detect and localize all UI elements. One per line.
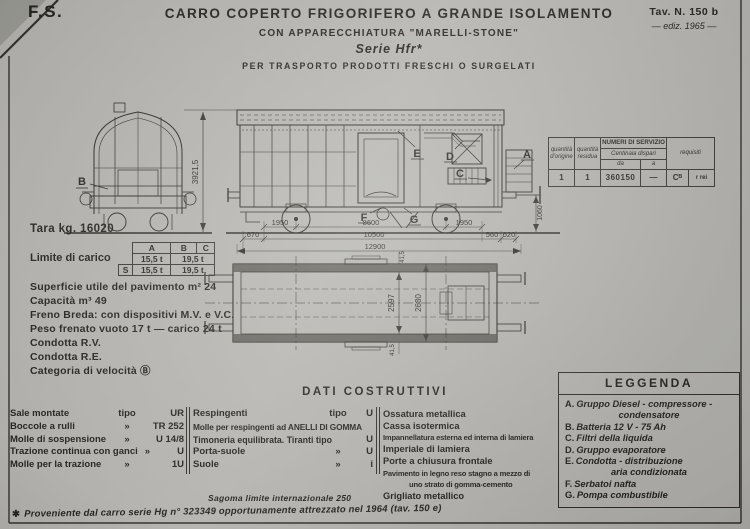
legend-items: A.Gruppo Diesel - compressore - condensa… — [559, 395, 739, 507]
dati-label: Molle di sospensione — [10, 434, 112, 447]
dati-item: Ossatura metallica — [383, 409, 555, 421]
load-limit-row: Limite di carico A B C 15,5 t 19,5 t S 1… — [30, 240, 262, 280]
ice-hatch-frame — [358, 133, 404, 203]
dim-620: 620 — [503, 230, 516, 239]
dati-row: Molle di sospensione » U 14/8 — [10, 434, 184, 447]
label-a: A — [523, 149, 531, 161]
legend-item-b: B.Batteria 12 V - 75 Ah — [565, 422, 733, 433]
dati-column-3: Ossatura metallica Cassa isotermica Impa… — [383, 409, 555, 503]
dati-item: Pavimento in legno reso stagno a mezzo d… — [383, 468, 555, 480]
dati-row: Timoneria equilibrata. Tiranti tipo U — [193, 434, 373, 447]
dim-12900: 12900 — [365, 242, 386, 251]
dim-10500: 10500 — [364, 230, 385, 239]
sheet-number-block: Tav. N. 150 b — ediz. 1965 — — [630, 6, 738, 31]
legend-text: Serbatoi nafta — [574, 479, 636, 489]
dati-row: Sale montate tipo UR — [10, 408, 184, 421]
purpose-subtitle: PER TRASPORTO PRODOTTI FRESCHI O SURGELA… — [148, 61, 630, 71]
limit-header-a: A — [133, 243, 171, 254]
dati-label: Timoneria equilibrata. Tiranti tipo — [193, 434, 353, 447]
legend-title: LEGGENDA — [559, 373, 739, 395]
limit-r1-a: 15,5 t — [133, 254, 171, 265]
spec-condotta-rv: Condotta R.V. — [30, 336, 262, 350]
legend-text: Filtri della liquida — [576, 433, 652, 443]
limit-header-c: C — [197, 243, 215, 254]
dati-value: U — [353, 446, 373, 459]
legend-item-f: F.Serbatoi nafta — [565, 479, 733, 490]
dati-column-separator-2 — [376, 407, 380, 474]
dati-tipo: » — [112, 459, 142, 472]
cell-numero-a: — — [641, 170, 667, 187]
label-c: C — [456, 168, 464, 180]
dati-row: Molle per respingenti ad ANELLI DI GOMMA — [193, 421, 373, 434]
apparatus-subtitle: CON APPARECCHIATURA "MARELLI-STONE" — [148, 28, 630, 39]
cell-requisiti-2: r rei — [689, 170, 715, 187]
end-view: B — [64, 103, 212, 233]
dati-label: Trazione continua con ganci — [10, 446, 138, 459]
legend-key: G. — [565, 490, 575, 500]
wall-hatch-bottom — [233, 334, 497, 342]
cell-quantita-origine: 1 — [549, 170, 575, 187]
legend-key: A. — [565, 399, 574, 409]
limit-r1-bc: 19,5 t — [171, 254, 215, 265]
condenser-grille — [448, 168, 486, 184]
dati-label: Molle per respingenti ad ANELLI DI GOMMA — [193, 421, 373, 434]
dati-tipo: » — [323, 459, 353, 472]
spec-categoria-velocita: Categoria di velocità Ⓑ — [30, 364, 262, 378]
dati-label: Suole — [193, 459, 323, 472]
legend-item-e: E.Condotta - distribuzione — [565, 456, 733, 467]
limit-r2-a: 15,5 t — [133, 265, 171, 276]
length-dimensions: 1950 8600 1950 670 10500 560 620 12900 — [237, 218, 521, 254]
dim-1950-right: 1950 — [456, 218, 473, 227]
label-g: G — [410, 214, 419, 226]
roof-vent — [114, 103, 125, 112]
dim-2680: 2680 — [414, 294, 423, 312]
side-elevation — [226, 110, 560, 233]
col-centinaia-dispari: Centinaia dispari — [601, 149, 667, 160]
dim-2597: 2597 — [387, 294, 396, 312]
spec-condotta-re: Condotta R.E. — [30, 350, 262, 364]
title-block: CARRO COPERTO FRIGORIFERO A GRANDE ISOLA… — [148, 6, 630, 71]
dati-tipo: » — [112, 421, 142, 434]
dati-tipo: tipo — [112, 408, 142, 421]
dati-value: UR — [142, 408, 184, 421]
wall-hatch-top — [233, 264, 497, 272]
col-quantita-residua: quantità residua — [575, 138, 601, 170]
dim-1950-left: 1950 — [272, 218, 289, 227]
specifications-block: Tara kg. 16020 Limite di carico A B C 15… — [30, 223, 262, 378]
dati-value: TR 252 — [142, 421, 184, 434]
dati-value: U — [353, 434, 373, 447]
scanned-technical-sheet: { "header": { "org_mark": "F.S.", "title… — [0, 0, 750, 529]
col-a: a — [641, 160, 667, 170]
dati-tipo: » — [112, 434, 142, 447]
buffer-height-dimension: 1060 — [533, 195, 544, 232]
dim-wall-top: 41,5 — [400, 251, 406, 263]
dim-overall-height: 3921,5 — [191, 159, 200, 184]
door-plan-top — [345, 259, 387, 264]
spec-lines: Superficie utile del pavimento m² 24 Cap… — [30, 280, 262, 378]
legend-key: C. — [565, 433, 574, 443]
legend-key: B. — [565, 422, 574, 432]
dati-label: Boccole a rulli — [10, 421, 112, 434]
dati-row: Respingenti tipo U — [193, 408, 373, 421]
legend-text: Gruppo Diesel - compressore - — [576, 399, 712, 409]
spec-superficie: Superficie utile del pavimento m² 24 — [30, 280, 262, 294]
door-plan-bottom — [345, 342, 387, 347]
legend-text: Gruppo evaporatore — [576, 445, 665, 455]
dati-costruttivi-title: DATI COSTRUTTIVI — [300, 386, 450, 398]
tara-line: Tara kg. 16020 — [30, 223, 262, 240]
spec-peso-frenato: Peso frenato vuoto 17 t — carico 24 t — [30, 322, 262, 336]
legend-box: LEGGENDA A.Gruppo Diesel - compressore -… — [558, 372, 740, 508]
dati-tipo: » — [138, 446, 157, 459]
dim-buffer-height: 1060 — [537, 205, 544, 221]
dati-item: Impannellatura esterna ed interna di lam… — [383, 432, 555, 444]
dati-value: 1U — [142, 459, 184, 472]
legend-key: D. — [565, 445, 574, 455]
dati-value: U — [353, 408, 373, 421]
dati-item: uno strato di gomma-cemento — [383, 479, 555, 491]
load-limit-label: Limite di carico — [30, 240, 111, 280]
label-e: E — [413, 148, 420, 160]
dim-wall-bottom: 41,5 — [390, 344, 396, 356]
dati-tipo: » — [323, 446, 353, 459]
height-dimension: 3921,5 — [184, 110, 237, 232]
legend-key: E. — [565, 456, 574, 466]
end-view-label-b: B — [78, 176, 86, 188]
legend-item-d: D.Gruppo evaporatore — [565, 445, 733, 456]
service-number-table: quantità d'origine quantità residua NUME… — [548, 137, 715, 187]
legend-item-a-cont: condensatore — [565, 410, 733, 421]
dati-row: Suole » i — [193, 459, 373, 472]
dati-column-2: Respingenti tipo U Molle per respingenti… — [193, 408, 373, 472]
spec-capacita: Capacità m³ 49 — [30, 294, 262, 308]
legend-item-c: C.Filtri della liquida — [565, 433, 733, 444]
dati-row: Trazione continua con ganci » U — [10, 446, 184, 459]
dati-column-1: Sale montate tipo UR Boccole a rulli » T… — [10, 408, 184, 472]
legend-item-a: A.Gruppo Diesel - compressore - — [565, 399, 733, 410]
legend-text: Condotta - distribuzione — [576, 456, 683, 466]
dati-item: Cassa isotermica — [383, 421, 555, 433]
dati-column-separator-1 — [186, 407, 190, 474]
spec-freno: Freno Breda: con dispositivi M.V. e V.C. — [30, 308, 262, 322]
load-limit-table: A B C 15,5 t 19,5 t S 15,5 t 19,5 t — [118, 242, 216, 276]
cell-quantita-residua: 1 — [575, 170, 601, 187]
series-designation: Serie Hfr* — [148, 42, 630, 56]
dati-label: Respingenti — [193, 408, 323, 421]
dati-tipo: tipo — [323, 408, 353, 421]
legend-text: Batteria 12 V - 75 Ah — [576, 422, 666, 432]
dati-label: Molle per la trazione — [10, 459, 112, 472]
limit-header-b: B — [171, 243, 197, 254]
col-numeri-servizio: NUMERI DI SERVIZIO — [601, 138, 667, 149]
limit-r2-prefix: S — [118, 265, 133, 276]
dati-row: Porta-suole » U — [193, 446, 373, 459]
dati-row: Molle per la trazione » 1U — [10, 459, 184, 472]
dati-label: Sale montate — [10, 408, 112, 421]
col-da: da — [601, 160, 641, 170]
dati-label: Porta-suole — [193, 446, 323, 459]
col-quantita-origine: quantità d'origine — [549, 138, 575, 170]
legend-key: F. — [565, 479, 572, 489]
sagoma-note: Sagoma limite internazionale 250 — [208, 493, 351, 503]
cell-requisiti-1: Cᴮ — [667, 170, 689, 187]
legend-item-e-cont: aria condizionata — [565, 467, 733, 478]
col-requisiti: requisiti — [667, 138, 715, 170]
edition: — ediz. 1965 — — [630, 21, 738, 31]
org-mark: F.S. — [28, 2, 63, 22]
dati-value: i — [353, 459, 373, 472]
page-title: CARRO COPERTO FRIGORIFERO A GRANDE ISOLA… — [148, 6, 630, 21]
dati-item: Imperiale di lamiera — [383, 444, 555, 456]
legend-item-g: G.Pompa combustibile — [565, 490, 733, 501]
cell-numero-da: 360150 — [601, 170, 641, 187]
dati-value: U — [157, 446, 184, 459]
dim-560: 560 — [486, 230, 499, 239]
legend-text: Pompa combustibile — [577, 490, 668, 500]
dati-row: Boccole a rulli » TR 252 — [10, 421, 184, 434]
dim-8600: 8600 — [363, 218, 380, 227]
limit-r2-bc: 19,5 t — [171, 265, 215, 276]
label-d: D — [446, 151, 454, 163]
dati-value: U 14/8 — [142, 434, 184, 447]
sheet-number: Tav. N. 150 b — [630, 6, 738, 18]
footnote-mark-icon: ✱ — [12, 509, 20, 520]
dati-item: Porte a chiusura frontale — [383, 456, 555, 468]
